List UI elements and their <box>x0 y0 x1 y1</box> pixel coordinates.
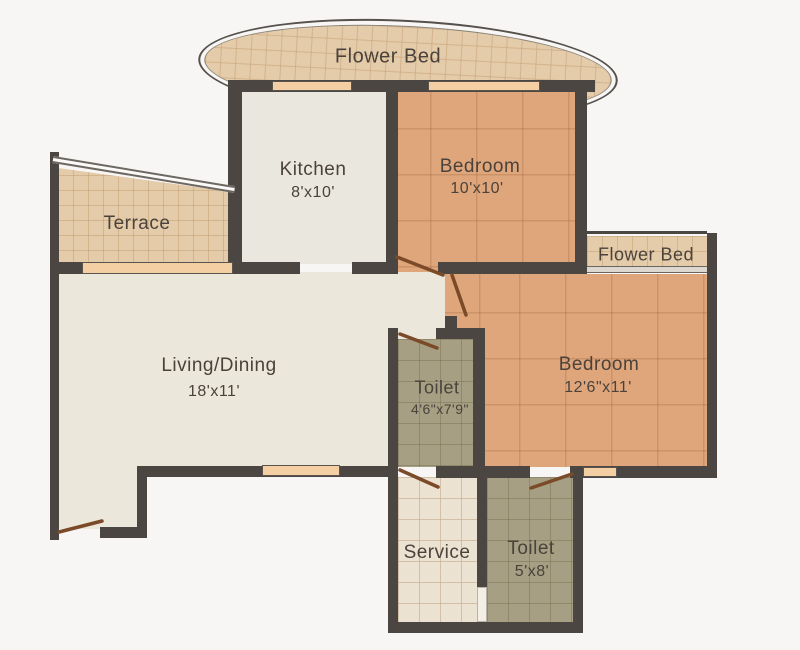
kitchen-left-wall <box>228 80 242 274</box>
kitchen-window <box>272 81 352 91</box>
service-toilet-divider-wall <box>477 467 487 587</box>
bedroom-top-window <box>428 81 540 91</box>
toilet-mid-right-wall <box>473 328 485 477</box>
flower-bed-right-label: Flower Bed <box>598 245 694 266</box>
kitchen-bottom-wall-left <box>228 262 300 274</box>
terrace-window <box>82 262 233 274</box>
kitchen-bottom-wall-right <box>352 262 398 274</box>
bedroom-top-label: Bedroom <box>440 156 521 178</box>
bottom-outer-wall <box>388 622 583 633</box>
flower-bed-right-window <box>587 266 707 273</box>
service-label: Service <box>404 542 471 564</box>
toilet-mid-label: Toilet <box>414 378 459 399</box>
bedroom-right-label: Bedroom <box>559 354 640 376</box>
toilet-bottom-dims: 5'x8' <box>515 563 549 581</box>
entry-foyer-area <box>58 467 138 529</box>
service-vent-window <box>477 587 487 622</box>
entry-wall <box>100 527 147 538</box>
living-dining-label: Living/Dining <box>161 355 276 377</box>
right-outer-wall <box>707 233 717 478</box>
living-window <box>262 465 340 476</box>
toilet-bottom-right-wall <box>573 467 583 633</box>
kitchen-bedroom-divider-wall <box>386 80 398 274</box>
bedroom-right-window <box>583 467 617 477</box>
floor-plan: Flower Bed Kitchen 8'x10' Bedroom 10'x10… <box>0 0 800 650</box>
terrace-window-end-wall <box>58 262 82 274</box>
toilet-bottom-label: Toilet <box>507 538 554 560</box>
wet-area-left-wall <box>388 328 398 633</box>
flower-bed-top-label: Flower Bed <box>335 46 441 69</box>
kitchen-label: Kitchen <box>280 159 347 181</box>
left-outer-wall <box>50 152 59 540</box>
bedroom-right-dims: 12'6"x11' <box>564 379 632 397</box>
flower-bed-right-rail <box>587 231 707 234</box>
bedroom-top-right-wall <box>575 80 587 274</box>
bedroom-top-dims: 10'x10' <box>450 180 503 198</box>
terrace-label: Terrace <box>104 213 171 235</box>
kitchen-dims: 8'x10' <box>291 184 335 202</box>
toilet-mid-dims: 4'6"x7'9" <box>411 401 469 417</box>
passage-stub-wall <box>445 316 457 330</box>
living-dining-dims: 18'x11' <box>188 383 240 401</box>
bedroom-right-bottom-wall-left <box>436 466 530 478</box>
bedrooms-divider-wall <box>438 262 587 274</box>
